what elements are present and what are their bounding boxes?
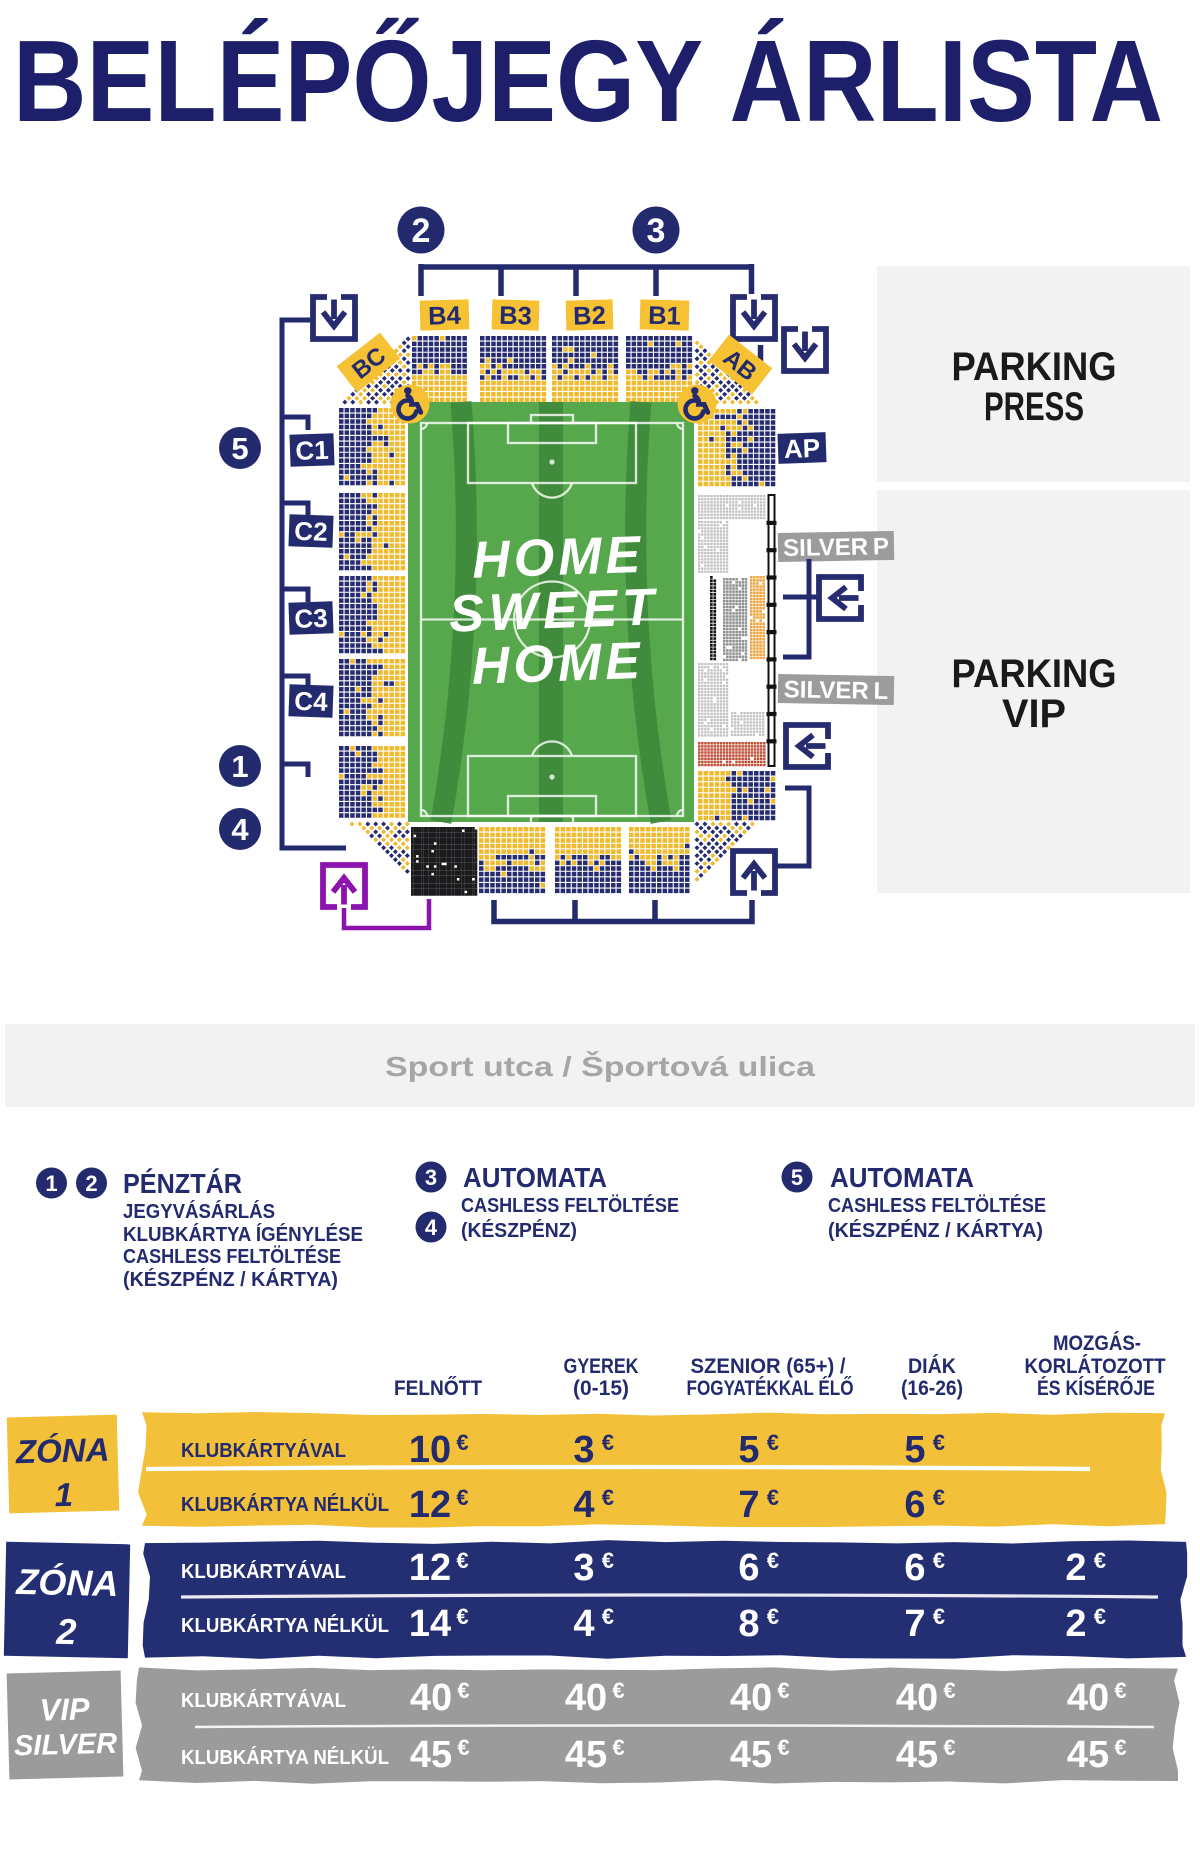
svg-text:DIÁK: DIÁK — [908, 1355, 956, 1378]
svg-text:€: € — [612, 1735, 624, 1760]
svg-text:KLUBKÁRTYÁVAL: KLUBKÁRTYÁVAL — [181, 1439, 346, 1462]
svg-text:KLUBKÁRTYA NÉLKÜL: KLUBKÁRTYA NÉLKÜL — [181, 1493, 389, 1516]
svg-text:€: € — [612, 1678, 624, 1703]
svg-text:6: 6 — [738, 1547, 759, 1589]
svg-text:€: € — [943, 1735, 955, 1760]
svg-text:PARKING: PARKING — [952, 345, 1117, 389]
svg-text:SILVER L: SILVER L — [784, 676, 889, 705]
svg-text:€: € — [777, 1678, 789, 1703]
svg-text:PÉNZTÁR: PÉNZTÁR — [123, 1168, 242, 1199]
svg-text:€: € — [1094, 1548, 1106, 1573]
svg-text:4: 4 — [231, 812, 249, 847]
svg-text:HOME: HOME — [471, 632, 645, 696]
svg-text:1: 1 — [231, 749, 248, 784]
svg-text:JEGYVÁSÁRLÁS: JEGYVÁSÁRLÁS — [123, 1200, 275, 1223]
svg-text:€: € — [457, 1678, 469, 1703]
svg-text:5: 5 — [904, 1429, 925, 1471]
svg-text:12: 12 — [409, 1547, 451, 1589]
svg-text:12: 12 — [409, 1484, 451, 1526]
svg-text:4: 4 — [573, 1603, 594, 1645]
svg-text:1: 1 — [54, 1476, 73, 1513]
svg-text:40: 40 — [410, 1677, 452, 1719]
svg-text:€: € — [456, 1430, 468, 1455]
svg-text:€: € — [1114, 1735, 1126, 1760]
svg-text:AUTOMATA: AUTOMATA — [463, 1162, 607, 1193]
svg-text:ZÓNA: ZÓNA — [15, 1561, 119, 1604]
svg-text:BELÉPŐJEGY ÁRLISTA: BELÉPŐJEGY ÁRLISTA — [13, 16, 1163, 146]
svg-text:(0-15): (0-15) — [573, 1377, 629, 1400]
svg-text:5: 5 — [738, 1429, 759, 1471]
svg-text:CASHLESS FELTÖLTÉSE: CASHLESS FELTÖLTÉSE — [461, 1194, 679, 1217]
svg-text:(KÉSZPÉNZ): (KÉSZPÉNZ) — [461, 1219, 577, 1242]
svg-text:KLUBKÁRTYA NÉLKÜL: KLUBKÁRTYA NÉLKÜL — [181, 1614, 389, 1637]
svg-text:€: € — [602, 1548, 614, 1573]
svg-text:8: 8 — [738, 1603, 759, 1645]
svg-text:6: 6 — [904, 1547, 925, 1589]
svg-text:€: € — [933, 1548, 945, 1573]
svg-text:2: 2 — [55, 1611, 77, 1652]
svg-text:€: € — [456, 1604, 468, 1629]
svg-text:€: € — [1114, 1678, 1126, 1703]
svg-text:€: € — [1094, 1604, 1106, 1629]
svg-text:45: 45 — [410, 1734, 452, 1776]
svg-text:SILVER: SILVER — [14, 1728, 118, 1763]
svg-text:€: € — [943, 1678, 955, 1703]
svg-text:AUTOMATA: AUTOMATA — [830, 1162, 974, 1193]
svg-text:C1: C1 — [295, 435, 329, 466]
svg-text:(KÉSZPÉNZ / KÁRTYA): (KÉSZPÉNZ / KÁRTYA) — [123, 1268, 338, 1291]
svg-text:ÉS KÍSÉRŐJE: ÉS KÍSÉRŐJE — [1037, 1377, 1155, 1400]
svg-text:3: 3 — [573, 1429, 594, 1471]
svg-text:2: 2 — [1065, 1547, 1086, 1589]
svg-text:KLUBKÁRTYÁVAL: KLUBKÁRTYÁVAL — [181, 1560, 346, 1583]
svg-text:MOZGÁS-: MOZGÁS- — [1053, 1332, 1141, 1355]
svg-text:C3: C3 — [294, 603, 328, 634]
svg-text:40: 40 — [896, 1677, 938, 1719]
svg-text:1: 1 — [45, 1171, 57, 1196]
svg-text:CASHLESS FELTÖLTÉSE: CASHLESS FELTÖLTÉSE — [828, 1194, 1046, 1217]
svg-text:4: 4 — [573, 1484, 594, 1526]
svg-text:€: € — [777, 1735, 789, 1760]
svg-text:FELNŐTT: FELNŐTT — [394, 1377, 482, 1400]
svg-text:10: 10 — [409, 1429, 451, 1471]
svg-text:7: 7 — [904, 1603, 925, 1645]
svg-text:(16-26): (16-26) — [901, 1377, 963, 1400]
svg-text:PARKING: PARKING — [952, 652, 1117, 696]
svg-text:7: 7 — [738, 1484, 759, 1526]
svg-text:45: 45 — [896, 1734, 938, 1776]
svg-text:€: € — [933, 1604, 945, 1629]
svg-text:6: 6 — [904, 1484, 925, 1526]
svg-text:VIP: VIP — [39, 1691, 90, 1727]
svg-text:ZÓNA: ZÓNA — [14, 1431, 109, 1470]
svg-text:B2: B2 — [573, 302, 606, 331]
svg-text:4: 4 — [425, 1215, 438, 1240]
svg-text:€: € — [456, 1485, 468, 1510]
svg-text:KORLÁTOZOTT: KORLÁTOZOTT — [1025, 1355, 1166, 1378]
svg-text:€: € — [767, 1485, 779, 1510]
svg-text:45: 45 — [730, 1734, 772, 1776]
svg-text:5: 5 — [231, 431, 248, 466]
svg-text:€: € — [602, 1430, 614, 1455]
svg-text:40: 40 — [565, 1677, 607, 1719]
svg-text:€: € — [933, 1430, 945, 1455]
svg-text:€: € — [767, 1430, 779, 1455]
svg-text:SILVER P: SILVER P — [783, 533, 889, 562]
svg-text:2: 2 — [85, 1171, 97, 1196]
svg-text:€: € — [456, 1548, 468, 1573]
svg-text:VIP: VIP — [1002, 692, 1066, 736]
svg-text:CASHLESS FELTÖLTÉSE: CASHLESS FELTÖLTÉSE — [123, 1245, 341, 1268]
svg-text:€: € — [767, 1604, 779, 1629]
svg-text:3: 3 — [647, 212, 666, 250]
svg-text:AP: AP — [783, 433, 820, 464]
svg-text:€: € — [933, 1485, 945, 1510]
svg-text:3: 3 — [573, 1547, 594, 1589]
svg-text:SZENIOR (65+) /: SZENIOR (65+) / — [691, 1355, 846, 1378]
svg-text:€: € — [602, 1604, 614, 1629]
svg-text:KLUBKÁRTYA ÍGÉNYLÉSE: KLUBKÁRTYA ÍGÉNYLÉSE — [123, 1223, 363, 1246]
svg-text:C4: C4 — [294, 686, 329, 717]
svg-text:€: € — [602, 1485, 614, 1510]
svg-text:B1: B1 — [648, 302, 681, 331]
svg-text:PRESS: PRESS — [984, 385, 1084, 429]
svg-text:KLUBKÁRTYÁVAL: KLUBKÁRTYÁVAL — [181, 1689, 346, 1712]
svg-text:€: € — [767, 1548, 779, 1573]
svg-text:Sport utca / Športová ulica: Sport utca / Športová ulica — [385, 1050, 816, 1082]
svg-text:45: 45 — [565, 1734, 607, 1776]
svg-text:5: 5 — [791, 1165, 803, 1190]
svg-text:45: 45 — [1067, 1734, 1109, 1776]
svg-text:(KÉSZPÉNZ / KÁRTYA): (KÉSZPÉNZ / KÁRTYA) — [828, 1219, 1043, 1242]
svg-text:2: 2 — [1065, 1603, 1086, 1645]
svg-text:40: 40 — [730, 1677, 772, 1719]
svg-text:KLUBKÁRTYA NÉLKÜL: KLUBKÁRTYA NÉLKÜL — [181, 1746, 389, 1769]
svg-text:FOGYATÉKKAL ÉLŐ: FOGYATÉKKAL ÉLŐ — [687, 1377, 854, 1400]
svg-text:C2: C2 — [294, 516, 328, 547]
svg-text:GYEREK: GYEREK — [564, 1355, 639, 1378]
svg-text:B3: B3 — [499, 302, 532, 331]
svg-text:B4: B4 — [428, 302, 462, 331]
svg-text:40: 40 — [1067, 1677, 1109, 1719]
svg-text:3: 3 — [425, 1165, 437, 1190]
svg-text:14: 14 — [409, 1603, 451, 1645]
svg-text:€: € — [457, 1735, 469, 1760]
svg-text:2: 2 — [412, 212, 431, 250]
